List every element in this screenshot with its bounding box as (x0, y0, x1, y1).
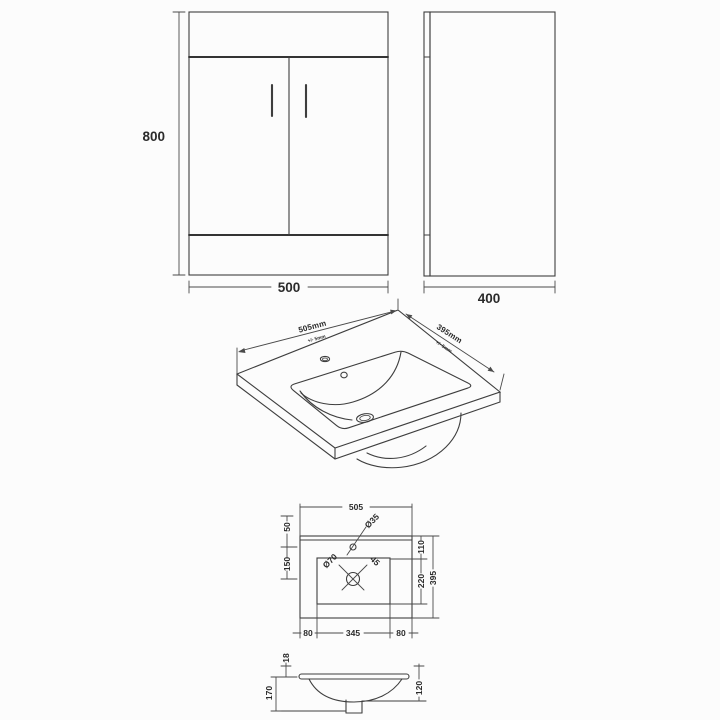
plan-bottom-dimensions: 80 345 80 (293, 604, 418, 638)
section-bowl-curve (309, 679, 402, 702)
side-depth-label: 400 (478, 291, 501, 306)
side-carcass-outline (430, 12, 555, 276)
basin-section-view: 18 170 120 (264, 653, 426, 713)
tap-hole-3d-inner (323, 358, 328, 361)
basin-plan-view: Ø35 Ø70 45 505 50 150 (281, 502, 439, 638)
basin-width-dimension: 505mm +/- 5mm (237, 299, 398, 373)
waste-cross-sw-ne (342, 565, 367, 590)
side-elevation-view: 400 (424, 12, 555, 306)
bowl-depth-label: 220 (416, 574, 426, 588)
front-height-label: 800 (142, 129, 165, 144)
door-edge-strip (424, 12, 430, 276)
vanity-technical-drawing: 800 500 400 (0, 0, 720, 720)
front-elevation-view: 800 500 (142, 12, 388, 295)
section-height-label: 170 (264, 686, 274, 700)
basin-depth-dimension: 395mm +/- 5mm (406, 314, 504, 390)
plan-width-dimension: 505 (300, 502, 412, 536)
waste-cross-nw-se (339, 565, 364, 590)
bowl-height-label: 120 (414, 681, 424, 695)
front-width-label: 500 (278, 280, 301, 295)
right-offset-label: 80 (396, 628, 406, 638)
section-height-dimension: 170 (264, 677, 281, 711)
waste-diameter-label: Ø70 (321, 551, 340, 570)
rim-thickness-label: 18 (281, 653, 291, 663)
bowl-underside-inner (367, 446, 426, 458)
front-width-dimension: 500 (189, 280, 388, 295)
basin-depth-tolerance: +/- 5mm (434, 340, 453, 355)
left-offset-label: 80 (303, 628, 313, 638)
waste-hole-3d (356, 413, 374, 424)
side-depth-dimension: 400 (424, 281, 555, 306)
tap-setback-label: 50 (282, 522, 292, 532)
waste-angle-label: 45 (368, 554, 382, 568)
plan-left-dimensions: 50 150 (281, 516, 297, 579)
rim-to-bowl-label: 110 (416, 540, 426, 554)
waste-hole-3d-inner (359, 415, 370, 422)
plan-right-dimensions: 110 220 395 (390, 536, 439, 618)
bowl-floor-curve (300, 391, 352, 420)
tap-to-waste-label: 150 (282, 557, 292, 571)
plan-width-label: 505 (349, 502, 363, 512)
technical-drawing-canvas: 800 500 400 (0, 0, 720, 720)
section-rim (299, 674, 409, 679)
section-bowl-height-dimension: 120 (414, 664, 424, 701)
tap-hole-leader (347, 527, 366, 555)
front-height-dimension: 800 (142, 12, 185, 275)
overflow-hole-3d (341, 372, 347, 378)
basin-perspective-view: 505mm +/- 5mm 395mm +/- 5mm (237, 299, 504, 468)
section-rim-thickness-dimension: 18 (281, 653, 297, 677)
bowl-width-label: 345 (346, 628, 360, 638)
plan-depth-label: 395 (428, 571, 438, 585)
bowl-interior-curve (301, 352, 401, 405)
basin-opening-rim (291, 351, 471, 428)
